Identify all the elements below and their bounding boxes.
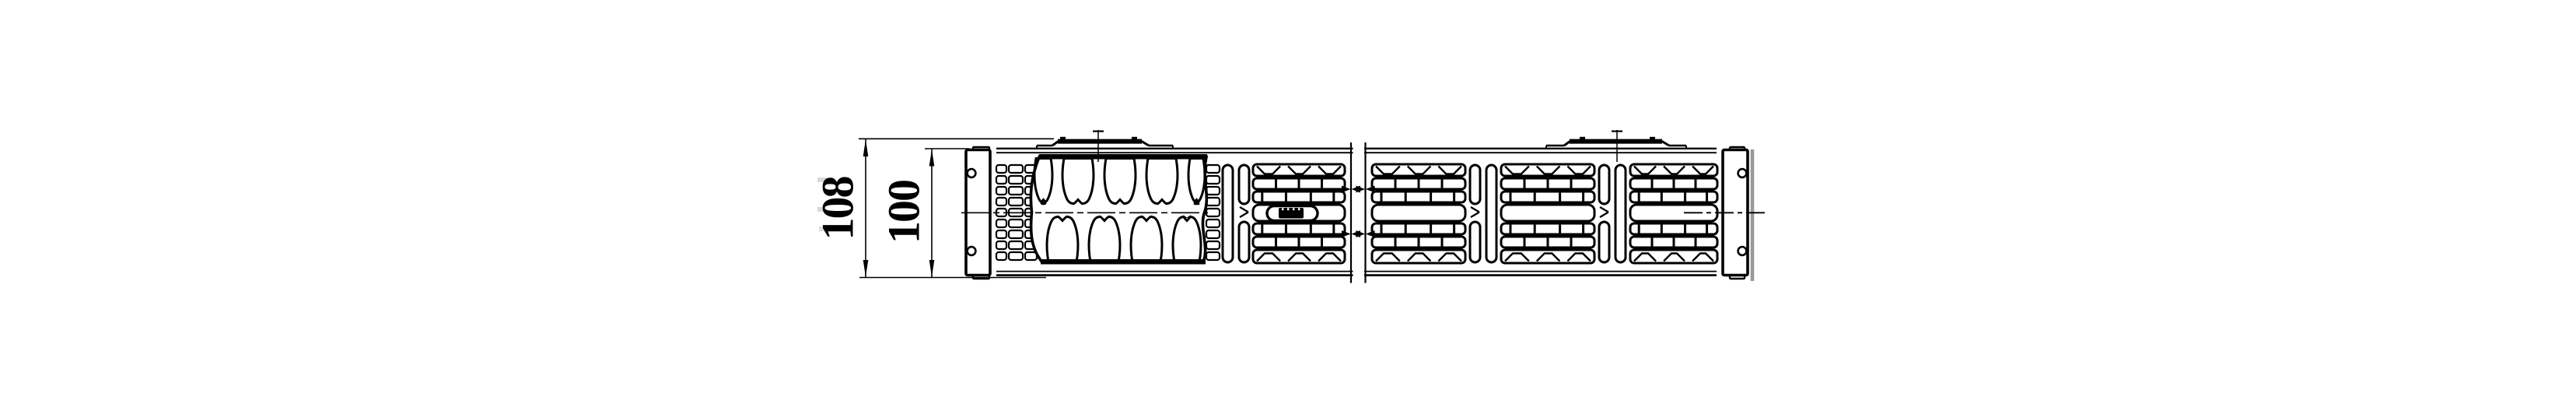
- louvre-line: [1257, 254, 1280, 262]
- convector-fin: [1062, 159, 1094, 204]
- louvre-line: [1664, 254, 1685, 262]
- louvre-line: [1408, 254, 1431, 262]
- break-gap: [1353, 141, 1365, 284]
- grille-stub-slat: [1206, 198, 1220, 205]
- slat-joint-mark: [1240, 207, 1248, 217]
- grille-slat: [1630, 205, 1717, 221]
- grille-stub-slat: [996, 176, 1006, 184]
- break-arrow: [1366, 186, 1375, 193]
- louvre-line: [1537, 254, 1560, 262]
- convector-fin: [1146, 159, 1178, 204]
- dimension-label-108: 108: [813, 177, 863, 241]
- radiator-body: [961, 130, 1765, 284]
- grille-vertical-slat: [1223, 165, 1233, 262]
- louvre-line: [1505, 254, 1529, 262]
- grille-stub-slat: [996, 198, 1006, 205]
- bracket-hole: [968, 247, 976, 255]
- louvre-line: [1408, 167, 1431, 174]
- grille-vertical-slat: [1239, 165, 1249, 204]
- grille-stub-slat: [1009, 241, 1023, 249]
- grille-slat: [1630, 223, 1717, 234]
- dimension-label-100: 100: [879, 181, 929, 244]
- grille-vertical-slat: [1486, 165, 1496, 262]
- grille-slat: [1630, 250, 1717, 263]
- grille-vertical-slat: [1599, 222, 1609, 262]
- louvre-line: [1567, 167, 1591, 174]
- grille-slat: [1630, 191, 1717, 202]
- convector-fin: [1047, 216, 1078, 262]
- grille-stub-slat: [1009, 198, 1023, 205]
- arrowhead-100-top: [929, 149, 935, 167]
- bracket-tab: [1132, 137, 1137, 139]
- grille-slat: [1372, 191, 1465, 202]
- grille-vertical-slat: [1615, 165, 1626, 262]
- grille-stub-slat: [1206, 176, 1220, 184]
- slat-joint-mark: [1600, 207, 1608, 217]
- grille-stub-slat: [996, 165, 1006, 173]
- break-arrow: [1366, 230, 1375, 237]
- brand-badge-mark: [1298, 208, 1300, 210]
- convector-fin: [1188, 159, 1205, 204]
- grille-stub-slat: [996, 252, 1006, 260]
- grille-slat: [1372, 223, 1465, 234]
- louvre-line: [1537, 167, 1560, 174]
- grille-stub-slat: [1009, 187, 1023, 195]
- grille-stub-slat: [996, 220, 1006, 227]
- louvre-line: [1505, 167, 1529, 174]
- grille-vertical-slat: [1239, 222, 1249, 262]
- grille-stub-slat: [996, 241, 1006, 249]
- grille-slat: [1501, 250, 1594, 263]
- louvre-line: [1634, 167, 1656, 174]
- bracket-tab: [1650, 137, 1655, 139]
- louvre-line: [1634, 254, 1656, 262]
- grille-stub-slat: [996, 187, 1006, 195]
- arrowhead-108-bottom: [863, 260, 869, 277]
- technical-drawing-canvas: 108 100: [0, 0, 2576, 411]
- grille-slat: [1253, 191, 1345, 202]
- arrowhead-100-bottom: [929, 260, 935, 277]
- grille-slat: [1501, 205, 1594, 221]
- slat-joint-mark: [1471, 207, 1479, 217]
- grille-slat: [1501, 191, 1594, 202]
- break-arrow: [1342, 230, 1351, 237]
- bracket-hole: [1738, 169, 1747, 177]
- brand-badge-mark: [1287, 208, 1289, 210]
- convector-fin: [1173, 216, 1201, 262]
- louvre-line: [1257, 167, 1280, 174]
- grille-slat: [1253, 250, 1345, 263]
- grille-stub-slat: [1206, 241, 1220, 249]
- grille-stub-slat: [1206, 230, 1220, 238]
- grille-stub-slat: [1009, 176, 1023, 184]
- louvre-line: [1376, 254, 1400, 262]
- grille-stub-slat: [1206, 252, 1220, 260]
- louvre-line: [1318, 254, 1341, 262]
- bracket-hole: [968, 169, 976, 177]
- bracket-tab: [1060, 137, 1066, 139]
- radiator-top-view-drawing: 108 100: [0, 0, 2576, 411]
- louvre-line: [1567, 254, 1591, 262]
- grille-vertical-slat: [1470, 222, 1480, 262]
- grille-slat: [1501, 223, 1594, 234]
- grille-slat: [1253, 223, 1345, 234]
- louvre-line: [1664, 167, 1685, 174]
- convector-fin: [1104, 159, 1136, 204]
- grille-stub-slat: [1009, 220, 1023, 227]
- convector-fin: [1089, 216, 1120, 262]
- grille-stub-slat: [1009, 252, 1023, 260]
- grille-slat: [1372, 205, 1465, 221]
- brand-badge-mark: [1293, 208, 1294, 210]
- louvre-line: [1288, 254, 1311, 262]
- grille-stub-slat: [996, 230, 1006, 238]
- arrowhead-108-top: [863, 139, 869, 156]
- grille-vertical-slat: [1599, 165, 1609, 204]
- grille-vertical-slat: [1470, 165, 1480, 204]
- louvre-line: [1318, 167, 1341, 174]
- bracket-hole: [1738, 247, 1747, 255]
- brand-badge-mark: [1282, 208, 1283, 210]
- louvre-line: [1692, 167, 1713, 174]
- grille-stub-slat: [1206, 165, 1220, 173]
- louvre-line: [1438, 254, 1461, 262]
- louvre-line: [1692, 254, 1713, 262]
- grille-stub-slat: [1009, 165, 1023, 173]
- bracket-tab: [1580, 137, 1585, 139]
- break-arrow: [1342, 186, 1351, 193]
- louvre-line: [1438, 167, 1461, 174]
- grille-stub-slat: [1206, 209, 1220, 216]
- convector-fin: [1131, 216, 1162, 262]
- grille-stub-slat: [1009, 230, 1023, 238]
- louvre-line: [1288, 167, 1311, 174]
- grille-slat: [1372, 250, 1465, 263]
- grille-stub-slat: [1206, 187, 1220, 195]
- louvre-line: [1376, 167, 1400, 174]
- grille-stub-slat: [1206, 220, 1220, 227]
